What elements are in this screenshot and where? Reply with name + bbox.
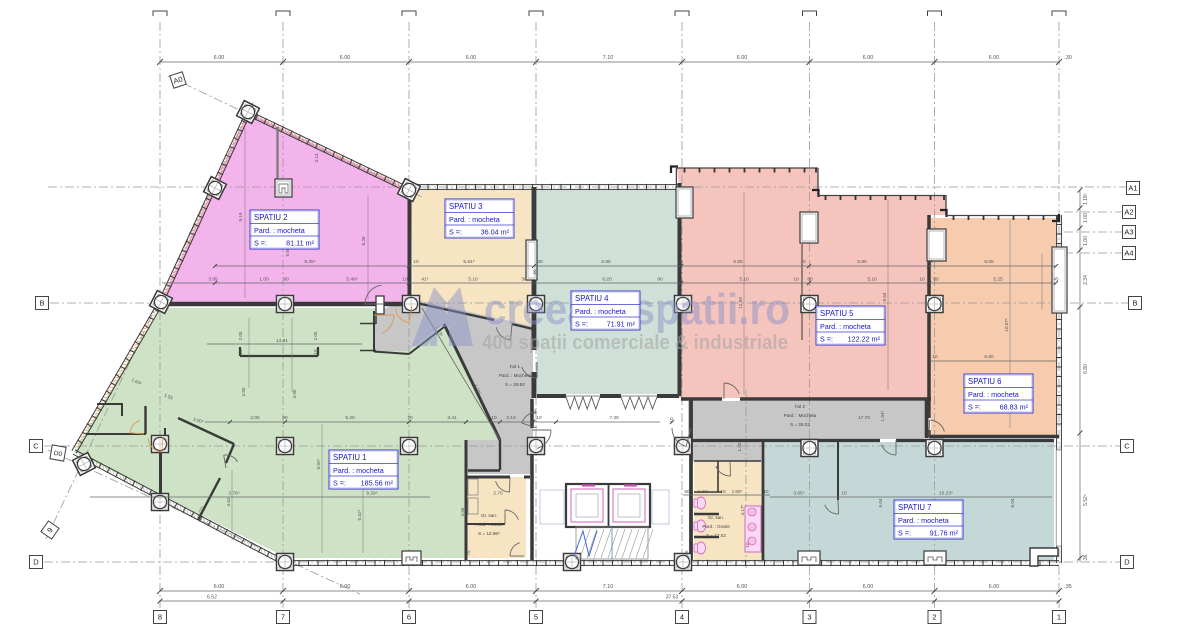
svg-text:6.50: 6.50 (984, 354, 994, 360)
svg-text:10: 10 (238, 349, 243, 355)
svg-text:5.55: 5.55 (733, 259, 743, 265)
svg-text:6.85: 6.85 (601, 259, 611, 265)
svg-text:A1: A1 (1128, 184, 1137, 193)
svg-text:SPATIU 1: SPATIU 1 (333, 453, 367, 462)
svg-text:1.85⁵: 1.85⁵ (732, 489, 743, 494)
svg-text:9.19: 9.19 (238, 212, 243, 221)
svg-text:S =:: S =: (254, 239, 267, 248)
svg-text:10.57⁵: 10.57⁵ (1004, 318, 1009, 331)
svg-text:5.81⁵: 5.81⁵ (463, 259, 474, 265)
svg-text:S =:: S =: (575, 320, 588, 329)
svg-text:9.29⁵: 9.29⁵ (366, 491, 377, 497)
svg-text:10: 10 (932, 354, 938, 360)
svg-text:60: 60 (684, 489, 690, 494)
svg-text:3.65⁵: 3.65⁵ (793, 491, 804, 497)
svg-text:3.13: 3.13 (314, 153, 319, 162)
svg-text:6.00: 6.00 (466, 55, 477, 61)
svg-text:A3: A3 (1124, 228, 1133, 237)
svg-text:10: 10 (536, 415, 542, 421)
svg-text:10: 10 (402, 277, 408, 283)
svg-text:10: 10 (669, 417, 674, 423)
svg-text:6.39: 6.39 (361, 236, 366, 245)
svg-text:6.52: 6.52 (207, 595, 217, 601)
svg-text:D0: D0 (53, 450, 63, 458)
svg-text:80: 80 (933, 277, 939, 283)
svg-text:Pard. : mocheta: Pard. : mocheta (898, 516, 949, 525)
svg-text:Pard. : mocheta: Pard. : mocheta (820, 322, 871, 331)
svg-text:Pard. : mocheta: Pard. : mocheta (449, 215, 500, 224)
svg-text:1.18⁵: 1.18⁵ (1083, 193, 1089, 205)
svg-text:1.21⁵: 1.21⁵ (698, 489, 709, 494)
svg-text:6.80: 6.80 (1083, 364, 1089, 374)
svg-text:SPATIU 4: SPATIU 4 (575, 294, 609, 303)
svg-text:3.80: 3.80 (241, 387, 246, 396)
svg-text:B: B (39, 299, 44, 308)
svg-text:10: 10 (313, 349, 318, 355)
svg-text:.35: .35 (1064, 584, 1072, 590)
svg-text:85: 85 (684, 550, 689, 556)
svg-text:81.11 m²: 81.11 m² (286, 239, 314, 248)
svg-text:71.91 m²: 71.91 m² (607, 320, 636, 329)
svg-text:SPATIU 3: SPATIU 3 (449, 202, 483, 211)
svg-text:70: 70 (407, 415, 413, 421)
svg-text:6.00: 6.00 (863, 55, 874, 61)
svg-text:Pard. : Granit: Pard. : Granit (475, 522, 503, 527)
svg-text:10: 10 (793, 277, 799, 283)
svg-text:5: 5 (534, 613, 538, 622)
svg-text:hol 1: hol 1 (510, 364, 520, 369)
svg-text:10: 10 (800, 259, 806, 265)
svg-text:7.39: 7.39 (609, 415, 619, 421)
svg-text:C: C (1124, 442, 1130, 451)
svg-text:30: 30 (521, 277, 527, 283)
svg-text:1.94⁵: 1.94⁵ (880, 410, 885, 421)
svg-text:30: 30 (537, 259, 543, 265)
svg-text:10: 10 (919, 277, 925, 283)
svg-text:SPATIU 2: SPATIU 2 (254, 213, 288, 222)
svg-text:D: D (33, 558, 39, 567)
svg-text:10: 10 (927, 259, 933, 265)
svg-text:1.00: 1.00 (737, 442, 742, 451)
svg-text:30: 30 (532, 269, 537, 275)
svg-text:7: 7 (281, 613, 285, 622)
svg-text:4.17⁵: 4.17⁵ (740, 504, 745, 515)
svg-text:6.00: 6.00 (340, 55, 351, 61)
svg-text:7.10: 7.10 (603, 55, 614, 61)
svg-text:10: 10 (413, 259, 419, 265)
svg-text:S =:: S =: (333, 479, 346, 488)
svg-text:S =:: S =: (820, 335, 833, 344)
svg-text:185.56 m²: 185.56 m² (361, 479, 394, 488)
svg-text:D: D (1124, 558, 1130, 567)
svg-text:S = 28.02: S = 28.02 (790, 422, 810, 427)
svg-text:37.53: 37.53 (666, 595, 679, 601)
svg-text:10: 10 (532, 409, 537, 415)
svg-text:5.32⁵: 5.32⁵ (357, 509, 362, 520)
svg-text:1.00: 1.00 (1083, 213, 1089, 223)
svg-text:17.70: 17.70 (858, 415, 870, 421)
svg-text:S =:: S =: (449, 228, 462, 237)
svg-text:9.35⁵: 9.35⁵ (304, 259, 315, 265)
svg-text:B: B (1132, 299, 1137, 308)
svg-text:3.56: 3.56 (460, 507, 465, 516)
svg-text:10: 10 (745, 542, 750, 548)
svg-text:5.48⁵: 5.48⁵ (346, 277, 357, 283)
svg-text:1.00: 1.00 (1083, 236, 1089, 246)
svg-text:Pard. : Granit: Pard. : Granit (702, 524, 730, 529)
svg-text:2.70: 2.70 (493, 491, 503, 497)
svg-text:4.62: 4.62 (226, 497, 231, 506)
svg-text:S =:: S =: (898, 529, 911, 538)
svg-text:5.90: 5.90 (857, 259, 867, 265)
svg-text:5.52⁵: 5.52⁵ (1083, 494, 1089, 506)
svg-text:SPATIU 5: SPATIU 5 (820, 309, 854, 318)
svg-text:S =:: S =: (968, 403, 981, 412)
svg-text:5.10: 5.10 (867, 277, 877, 283)
svg-text:36.04 m²: 36.04 m² (481, 228, 510, 237)
svg-text:SPATIU 6: SPATIU 6 (968, 377, 1002, 386)
svg-text:Gr. san.: Gr. san. (481, 513, 497, 518)
svg-text:Pard. : mocheta: Pard. : mocheta (254, 226, 305, 235)
svg-text:5.25: 5.25 (993, 277, 1003, 283)
svg-text:Gr. san.: Gr. san. (708, 515, 724, 520)
svg-text:2.34: 2.34 (1083, 275, 1089, 285)
svg-text:6.00: 6.00 (340, 584, 351, 590)
svg-text:C: C (33, 442, 39, 451)
svg-text:6.00: 6.00 (989, 584, 1000, 590)
svg-text:.30: .30 (1064, 55, 1072, 61)
svg-text:3.76⁵: 3.76⁵ (228, 491, 239, 497)
svg-text:Pard. : Mocheta: Pard. : Mocheta (784, 413, 817, 418)
svg-text:3: 3 (807, 613, 811, 622)
svg-text:Pard. : mocheta: Pard. : mocheta (333, 466, 384, 475)
svg-text:9.54: 9.54 (882, 292, 887, 301)
svg-text:6: 6 (407, 613, 411, 622)
svg-text:2.00: 2.00 (313, 331, 318, 340)
svg-text:10: 10 (677, 259, 683, 265)
svg-text:A4: A4 (1124, 249, 1133, 258)
svg-text:400 spații comerciale & indust: 400 spații comerciale & industriale (482, 332, 788, 354)
svg-text:10.23⁵: 10.23⁵ (939, 491, 953, 497)
svg-text:6.00: 6.00 (737, 55, 748, 61)
svg-text:.36: .36 (1083, 554, 1089, 561)
svg-text:2.05: 2.05 (250, 415, 260, 421)
svg-text:8: 8 (158, 613, 162, 622)
svg-text:6.20: 6.20 (602, 277, 612, 283)
svg-text:90: 90 (657, 277, 663, 283)
svg-text:75: 75 (466, 550, 471, 556)
svg-text:SPATIU 7: SPATIU 7 (898, 503, 932, 512)
svg-text:5.20: 5.20 (345, 415, 355, 421)
svg-text:7.10: 7.10 (603, 584, 614, 590)
svg-text:Pard. : mocheta: Pard. : mocheta (968, 390, 1019, 399)
svg-text:122.22 m²: 122.22 m² (848, 335, 881, 344)
svg-text:68.83 m²: 68.83 m² (1000, 403, 1029, 412)
svg-text:Pard. : mocheta: Pard. : mocheta (575, 307, 626, 316)
svg-text:6.00: 6.00 (737, 584, 748, 590)
svg-text:3.90: 3.90 (292, 389, 297, 398)
svg-text:2: 2 (932, 613, 936, 622)
svg-text:14.91: 14.91 (276, 338, 288, 344)
svg-text:S = 17.02: S = 17.02 (706, 533, 726, 538)
svg-text:10: 10 (763, 489, 769, 494)
svg-text:90: 90 (282, 415, 288, 421)
svg-text:41⁵: 41⁵ (421, 277, 428, 283)
svg-text:6.00: 6.00 (989, 55, 1000, 61)
svg-text:2.00: 2.00 (238, 331, 243, 340)
svg-text:10: 10 (720, 489, 726, 494)
svg-text:5.10: 5.10 (468, 277, 478, 283)
svg-text:3.41: 3.41 (447, 415, 457, 421)
svg-text:1: 1 (1057, 613, 1061, 622)
svg-text:6.00: 6.00 (214, 584, 225, 590)
svg-text:6.05: 6.05 (984, 259, 994, 265)
svg-text:6.00: 6.00 (863, 584, 874, 590)
svg-text:2.10: 2.10 (506, 415, 516, 421)
svg-text:91.76 m²: 91.76 m² (930, 529, 959, 538)
svg-text:6.04: 6.04 (1010, 498, 1015, 507)
svg-text:10: 10 (841, 491, 847, 497)
svg-text:90: 90 (283, 277, 289, 283)
svg-text:Pard. : Mocheta: Pard. : Mocheta (499, 373, 532, 378)
svg-text:10: 10 (491, 415, 497, 421)
svg-text:45: 45 (1053, 277, 1059, 283)
svg-text:A2: A2 (1124, 208, 1133, 217)
svg-text:4: 4 (680, 613, 684, 622)
svg-text:9.92⁵: 9.92⁵ (316, 458, 321, 469)
svg-text:1.00: 1.00 (259, 277, 269, 283)
svg-text:6.00: 6.00 (214, 55, 225, 61)
svg-text:S = 29.92: S = 29.92 (505, 382, 525, 387)
svg-text:hol 2: hol 2 (795, 404, 805, 409)
svg-text:S = 12.96⁵: S = 12.96⁵ (478, 531, 500, 536)
svg-text:6.04: 6.04 (878, 498, 883, 507)
svg-text:6.00: 6.00 (466, 584, 477, 590)
